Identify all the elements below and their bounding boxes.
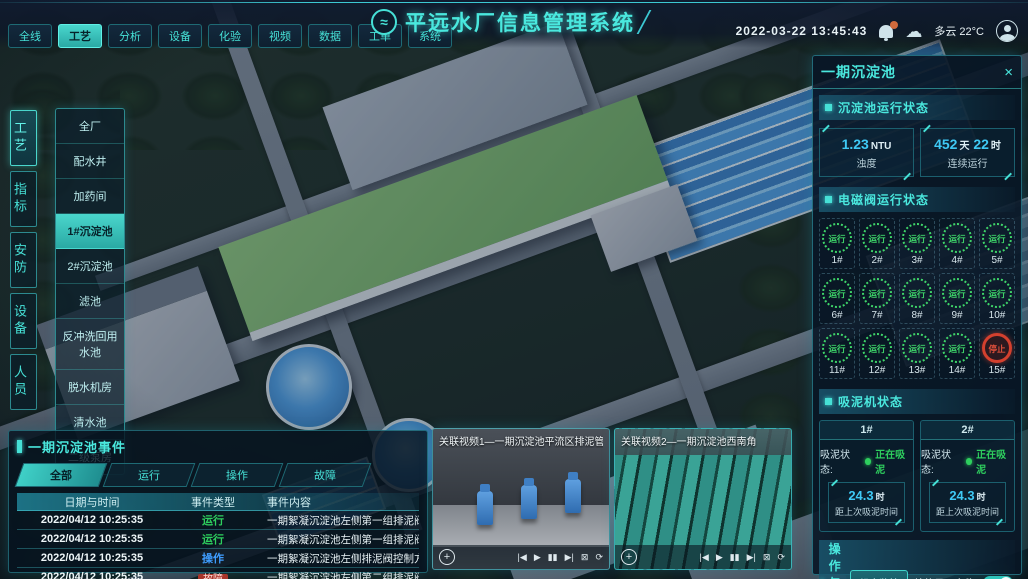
menu-item-fanchongxi[interactable]: 反冲洗回用水池 bbox=[56, 319, 124, 370]
events-tab-operate[interactable]: 操作 bbox=[191, 463, 284, 487]
detail-panel-title: 一期沉淀池 bbox=[821, 62, 896, 82]
process-submenu: 全厂 配水井 加药间 1#沉淀池 2#沉淀池 滤池 反冲洗回用水池 脱水机房 清… bbox=[55, 108, 125, 475]
top-bar: 全线 工艺 分析 设备 化验 视频 数据 工单 系统 ≈ 平远水厂信息管理系统 … bbox=[0, 0, 1028, 48]
runtime-days-unit: 天 bbox=[959, 141, 969, 152]
loop-icon[interactable]: ⟳ bbox=[595, 549, 603, 565]
notifications-bell-icon[interactable] bbox=[879, 25, 893, 38]
pump-graphic bbox=[477, 491, 493, 525]
close-icon[interactable]: × bbox=[1004, 65, 1013, 80]
valve-15: 停止15# bbox=[979, 328, 1015, 379]
menu-item-2-chendianchi[interactable]: 2#沉淀池 bbox=[56, 249, 124, 284]
valve-10: 运行10# bbox=[979, 273, 1015, 324]
events-tab-run[interactable]: 运行 bbox=[103, 463, 196, 487]
valve-7: 运行7# bbox=[859, 273, 895, 324]
loop-icon[interactable]: ⟳ bbox=[777, 549, 785, 565]
valve-4: 运行4# bbox=[939, 218, 975, 269]
events-table-header: 日期与时间事件类型事件内容 bbox=[17, 493, 419, 511]
turbidity-value: 1.23 bbox=[842, 136, 869, 152]
detail-panel: 一期沉淀池 × 沉淀池运行状态 1.23NTU 浊度 452天 22时 连续运行… bbox=[812, 55, 1022, 575]
event-row[interactable]: 2022/04/12 10:25:35 运行 一期絮凝沉淀池左侧第一组排泥阀正在… bbox=[17, 511, 419, 530]
video-1-title: 关联视频1—一期沉淀池平流区排泥管廊 bbox=[439, 433, 603, 448]
valve-gauge-icon: 运行 bbox=[982, 223, 1012, 253]
menu-item-tuoshuijifang[interactable]: 脱水机房 bbox=[56, 370, 124, 405]
runtime-hours: 22 bbox=[973, 136, 989, 152]
pump-graphic bbox=[565, 479, 581, 513]
video-2-title: 关联视频2—一期沉淀池西南角 bbox=[621, 433, 785, 448]
notification-badge bbox=[890, 21, 898, 29]
menu-item-1-chendianchi[interactable]: 1#沉淀池 bbox=[56, 214, 124, 249]
datetime-display: 2022-03-22 13:45:43 bbox=[736, 24, 868, 38]
nav-tab-huayan[interactable]: 化验 bbox=[208, 24, 252, 48]
weather-text: 多云 22°C bbox=[934, 23, 984, 39]
nav-tab-shipin[interactable]: 视频 bbox=[258, 24, 302, 48]
nav-tab-quanxian[interactable]: 全线 bbox=[8, 24, 52, 48]
events-tab-all[interactable]: 全部 bbox=[15, 463, 108, 487]
mud-time-card: 24.3时 距上次吸泥时间 bbox=[929, 482, 1006, 523]
event-row[interactable]: 2022/04/12 10:25:35 操作 一期絮凝沉淀池左侧排泥阀控制方式切… bbox=[17, 549, 419, 568]
app-title: 平远水厂信息管理系统 bbox=[405, 7, 635, 37]
turbidity-unit: NTU bbox=[871, 141, 892, 152]
pump-graphic bbox=[521, 485, 537, 519]
prev-icon[interactable]: |◀ bbox=[518, 549, 527, 565]
events-panel: 一期沉淀池事件 全部 运行 操作 故障 日期与时间事件类型事件内容 2022/0… bbox=[8, 430, 428, 573]
valve-9: 运行9# bbox=[939, 273, 975, 324]
runtime-hours-unit: 时 bbox=[991, 141, 1001, 152]
left-tab-anfang[interactable]: 安防 bbox=[10, 232, 37, 288]
valve-gauge-icon: 运行 bbox=[942, 278, 972, 308]
valve-gauge-icon: 运行 bbox=[862, 278, 892, 308]
video-panel-1: 关联视频1—一期沉淀池平流区排泥管廊 + |◀ ▶ ▮▮ ▶| ⊠ ⟳ bbox=[432, 428, 610, 570]
top-right-info: 2022-03-22 13:45:43 ☁ 多云 22°C bbox=[736, 20, 1018, 42]
dashboard: 全线 工艺 分析 设备 化验 视频 数据 工单 系统 ≈ 平远水厂信息管理系统 … bbox=[0, 0, 1028, 579]
app-logo-icon: ≈ bbox=[371, 9, 397, 35]
turbidity-card: 1.23NTU 浊度 bbox=[819, 128, 914, 177]
nav-tab-shebei[interactable]: 设备 bbox=[158, 24, 202, 48]
left-category-tabs: 工艺 指标 安防 设备 人员 bbox=[10, 110, 37, 410]
weather-cloud-icon: ☁ bbox=[905, 23, 922, 40]
events-accent-icon bbox=[17, 440, 22, 453]
user-avatar[interactable] bbox=[996, 20, 1018, 42]
mud-time-card: 24.3时 距上次吸泥时间 bbox=[828, 482, 905, 523]
tank-status-cards: 1.23NTU 浊度 452天 22时 连续运行 bbox=[813, 124, 1021, 181]
menu-item-peishuijing[interactable]: 配水井 bbox=[56, 144, 124, 179]
status-dot-icon bbox=[966, 458, 973, 465]
valve-13: 运行13# bbox=[899, 328, 935, 379]
status-dot-icon bbox=[865, 458, 872, 465]
events-table: 日期与时间事件类型事件内容 2022/04/12 10:25:35 运行 一期絮… bbox=[17, 493, 419, 579]
valve-gauge-icon: 运行 bbox=[982, 278, 1012, 308]
mud-machine-2: 2# 吸泥状态:正在吸泥 24.3时 距上次吸泥时间 bbox=[920, 420, 1015, 532]
runtime-card: 452天 22时 连续运行 bbox=[920, 128, 1015, 177]
left-tab-renyuan[interactable]: 人员 bbox=[10, 354, 37, 410]
runtime-label: 连续运行 bbox=[925, 155, 1010, 170]
valve-gauge-icon: 运行 bbox=[862, 223, 892, 253]
mud-machine-cards: 1# 吸泥状态:正在吸泥 24.3时 距上次吸泥时间 2# 吸泥状态:正在吸泥 … bbox=[813, 418, 1021, 534]
nav-tab-shuju[interactable]: 数据 bbox=[308, 24, 352, 48]
valve-status-grid: 运行1# 运行2# 运行3# 运行4# 运行5# 运行6# 运行7# 运行8# … bbox=[813, 216, 1021, 383]
valve-gauge-icon: 运行 bbox=[822, 278, 852, 308]
ptz-control-icon[interactable]: + bbox=[439, 549, 455, 565]
scada-monitor-button[interactable]: 组态监控 bbox=[850, 570, 908, 579]
valve-gauge-icon: 运行 bbox=[862, 333, 892, 363]
next-icon[interactable]: ▶| bbox=[747, 549, 756, 565]
menu-item-lvchi[interactable]: 滤池 bbox=[56, 284, 124, 319]
fullscreen-icon[interactable]: ⊠ bbox=[763, 549, 771, 565]
nav-tab-gongyi[interactable]: 工艺 bbox=[58, 24, 102, 48]
valve-gauge-icon: 运行 bbox=[822, 333, 852, 363]
valve-1: 运行1# bbox=[819, 218, 855, 269]
fullscreen-icon[interactable]: ⊠ bbox=[581, 549, 589, 565]
next-icon[interactable]: ▶| bbox=[565, 549, 574, 565]
brand-decoration bbox=[637, 10, 664, 34]
play-icon[interactable]: ▶ bbox=[716, 549, 723, 565]
valve-14: 运行14# bbox=[939, 328, 975, 379]
valve-5: 运行5# bbox=[979, 218, 1015, 269]
events-header: 一期沉淀池事件 bbox=[9, 431, 427, 458]
valves-section-header: 电磁阀运行状态 bbox=[819, 187, 1015, 212]
section-bullet-icon bbox=[825, 104, 832, 111]
valve-gauge-icon: 运行 bbox=[902, 278, 932, 308]
play-icon[interactable]: ▶ bbox=[534, 549, 541, 565]
left-tab-shebei[interactable]: 设备 bbox=[10, 293, 37, 349]
operations-section: 操作与设置 组态监控 始终显示事件: bbox=[819, 540, 1015, 579]
valve-gauge-icon: 停止 bbox=[982, 333, 1012, 363]
app-brand: ≈ 平远水厂信息管理系统 bbox=[371, 7, 657, 37]
video-2-controls: + |◀ ▶ ▮▮ ▶| ⊠ ⟳ bbox=[615, 545, 791, 569]
valve-12: 运行12# bbox=[859, 328, 895, 379]
left-tab-zhibiao[interactable]: 指标 bbox=[10, 171, 37, 227]
menu-item-jiayaojian[interactable]: 加药间 bbox=[56, 179, 124, 214]
section-bullet-icon bbox=[825, 398, 832, 405]
prev-icon[interactable]: |◀ bbox=[700, 549, 709, 565]
valve-gauge-icon: 运行 bbox=[942, 223, 972, 253]
left-tab-gongyi[interactable]: 工艺 bbox=[10, 110, 37, 166]
valve-8: 运行8# bbox=[899, 273, 935, 324]
event-row[interactable]: 2022/04/12 10:25:35 运行 一期絮凝沉淀池左侧第一组排泥阀正在… bbox=[17, 530, 419, 549]
valve-6: 运行6# bbox=[819, 273, 855, 324]
mud-machine-1: 1# 吸泥状态:正在吸泥 24.3时 距上次吸泥时间 bbox=[819, 420, 914, 532]
runtime-days: 452 bbox=[934, 136, 957, 152]
valve-2: 运行2# bbox=[859, 218, 895, 269]
pause-icon[interactable]: ▮▮ bbox=[548, 549, 558, 565]
turbidity-label: 浊度 bbox=[824, 155, 909, 170]
valve-gauge-icon: 运行 bbox=[902, 333, 932, 363]
events-tab-fault[interactable]: 故障 bbox=[279, 463, 372, 487]
video-1-controls: + |◀ ▶ ▮▮ ▶| ⊠ ⟳ bbox=[433, 545, 609, 569]
valve-3: 运行3# bbox=[899, 218, 935, 269]
ptz-control-icon[interactable]: + bbox=[621, 549, 637, 565]
valve-gauge-icon: 运行 bbox=[822, 223, 852, 253]
valve-gauge-icon: 运行 bbox=[902, 223, 932, 253]
mud-section-header: 吸泥机状态 bbox=[819, 389, 1015, 414]
detail-panel-header: 一期沉淀池 × bbox=[813, 56, 1021, 89]
always-show-events-toggle[interactable] bbox=[983, 576, 1013, 579]
nav-tab-fenxi[interactable]: 分析 bbox=[108, 24, 152, 48]
section-bullet-icon bbox=[825, 196, 832, 203]
events-filter-tabs: 全部 运行 操作 故障 bbox=[9, 458, 427, 491]
pause-icon[interactable]: ▮▮ bbox=[730, 549, 740, 565]
video-panel-2: 关联视频2—一期沉淀池西南角 + |◀ ▶ ▮▮ ▶| ⊠ ⟳ bbox=[614, 428, 792, 570]
menu-item-quanchang[interactable]: 全厂 bbox=[56, 109, 124, 144]
valve-gauge-icon: 运行 bbox=[942, 333, 972, 363]
event-row[interactable]: 2022/04/12 10:25:35 故障 一期絮凝沉淀池左侧第二组排泥阀启动… bbox=[17, 568, 419, 579]
valve-11: 运行11# bbox=[819, 328, 855, 379]
tank-status-section-header: 沉淀池运行状态 bbox=[819, 95, 1015, 120]
